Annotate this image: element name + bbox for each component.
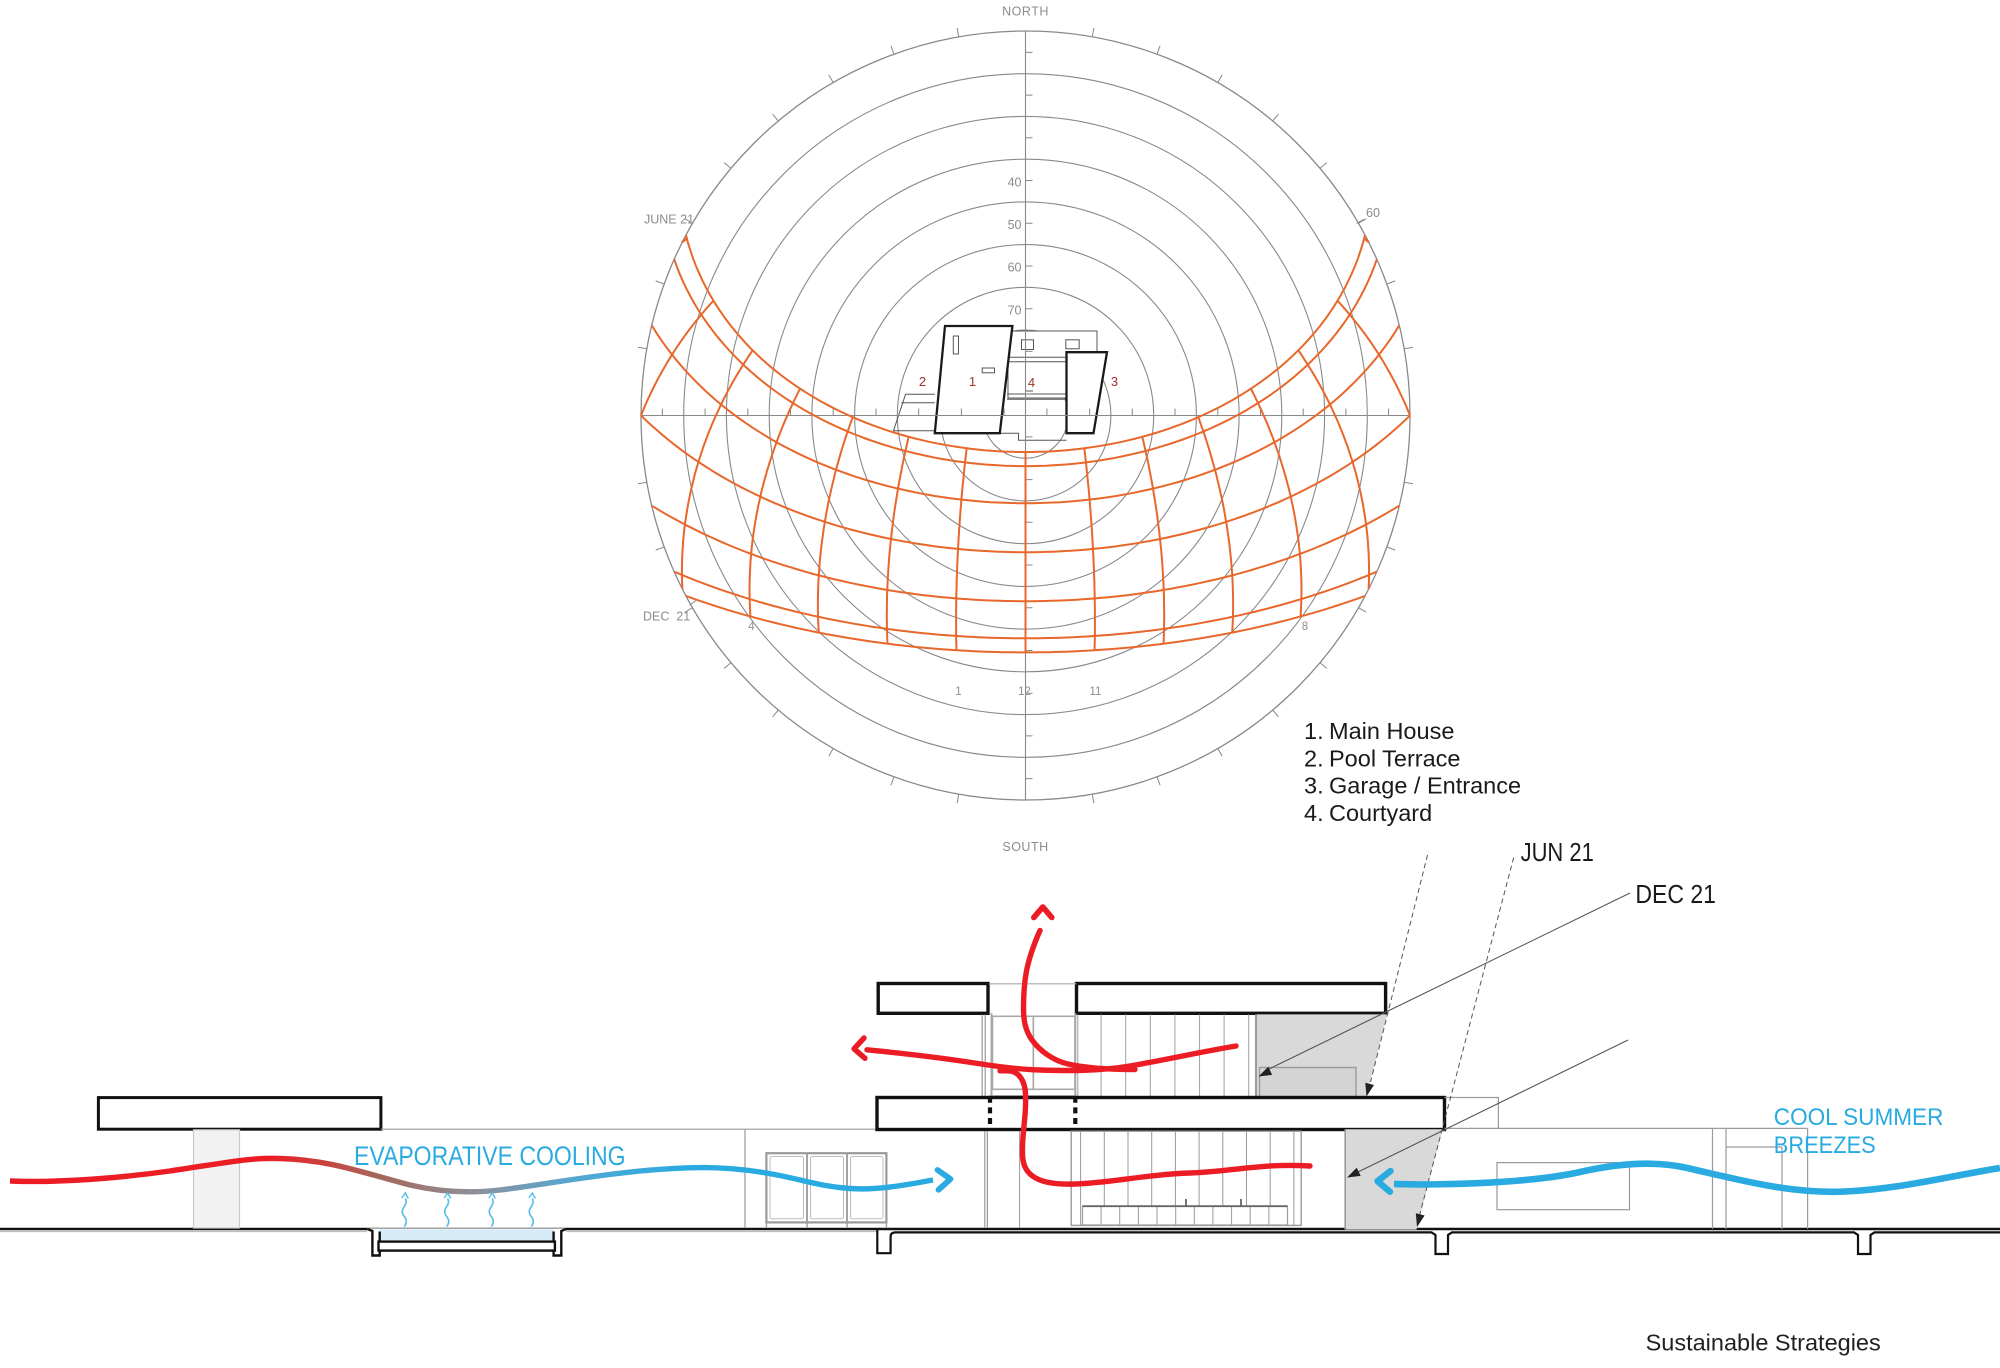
- svg-text:2.: 2.: [1304, 745, 1324, 771]
- svg-text:1: 1: [969, 374, 976, 389]
- svg-text:COOL SUMMER: COOL SUMMER: [1774, 1103, 1944, 1130]
- svg-text:60: 60: [1008, 261, 1022, 275]
- svg-text:SOUTH: SOUTH: [1002, 840, 1048, 854]
- svg-text:Main House: Main House: [1329, 718, 1454, 744]
- svg-text:50: 50: [1008, 218, 1022, 232]
- svg-text:EVAPORATIVE COOLING: EVAPORATIVE COOLING: [354, 1141, 626, 1171]
- svg-text:12: 12: [1018, 686, 1031, 698]
- svg-text:JUNE 21: JUNE 21: [644, 213, 694, 227]
- svg-text:4.: 4.: [1304, 800, 1324, 826]
- svg-text:JUN 21: JUN 21: [1521, 838, 1594, 867]
- svg-text:Pool Terrace: Pool Terrace: [1329, 745, 1461, 771]
- svg-text:1: 1: [955, 686, 961, 698]
- svg-text:BREEZES: BREEZES: [1774, 1131, 1876, 1158]
- svg-text:4: 4: [748, 621, 755, 633]
- svg-text:Sustainable Strategies: Sustainable Strategies: [1646, 1330, 1881, 1356]
- svg-text:Courtyard: Courtyard: [1329, 800, 1432, 826]
- svg-text:70: 70: [1008, 304, 1022, 318]
- svg-text:DEC 21: DEC 21: [1635, 881, 1716, 909]
- svg-text:40: 40: [1008, 176, 1022, 190]
- svg-text:DEC 21: DEC 21: [643, 610, 690, 624]
- svg-text:Garage / Entrance: Garage / Entrance: [1329, 773, 1521, 799]
- svg-text:60: 60: [1366, 206, 1380, 220]
- svg-text:1.: 1.: [1304, 718, 1324, 744]
- svg-text:3.: 3.: [1304, 773, 1324, 799]
- svg-text:4: 4: [1028, 375, 1035, 390]
- svg-text:NORTH: NORTH: [1002, 5, 1049, 19]
- svg-text:8: 8: [1302, 621, 1308, 633]
- svg-text:3: 3: [1111, 374, 1118, 389]
- svg-text:11: 11: [1090, 686, 1102, 698]
- svg-text:2: 2: [919, 374, 926, 389]
